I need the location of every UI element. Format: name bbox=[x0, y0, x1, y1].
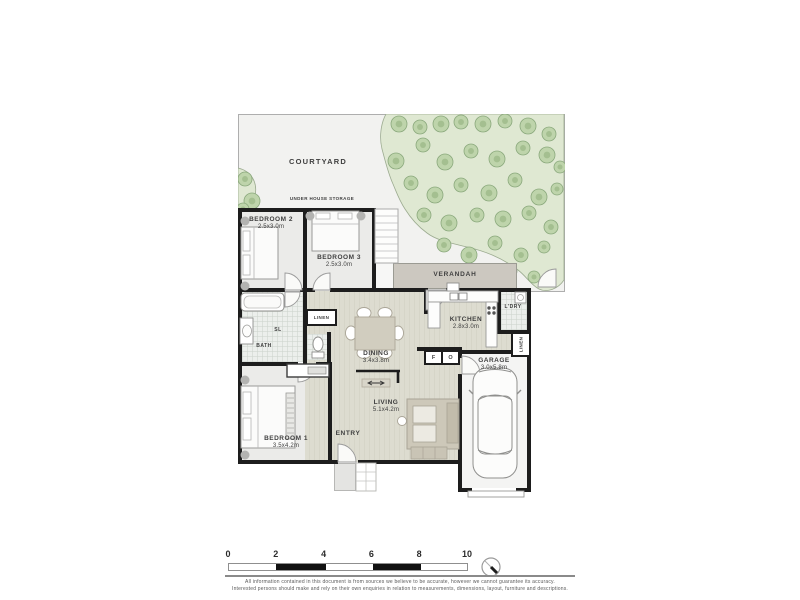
laundry-floor bbox=[501, 292, 527, 330]
kitchen-label: KITCHEN2.8x3.0m bbox=[450, 316, 482, 332]
wall bbox=[358, 460, 462, 464]
tree-inner bbox=[420, 142, 426, 148]
footer-divider bbox=[225, 575, 575, 577]
tree-inner bbox=[502, 118, 508, 124]
tree-inner bbox=[536, 194, 543, 201]
wall bbox=[497, 288, 501, 332]
wall bbox=[238, 362, 298, 366]
wall bbox=[328, 362, 332, 462]
dining-label: DINING3.4x3.8m bbox=[363, 350, 389, 366]
tree-inner bbox=[458, 182, 464, 188]
tree-inner bbox=[486, 190, 493, 197]
tree-inner bbox=[438, 121, 445, 128]
verandah-label: VERANDAH bbox=[433, 271, 476, 279]
tree-inner bbox=[494, 156, 501, 163]
floorplan-page: LINEN LINEN F O bbox=[0, 0, 800, 600]
linen-hall-box: LINEN bbox=[306, 309, 337, 326]
linen-hall-label: LINEN bbox=[314, 315, 330, 320]
wall bbox=[446, 288, 531, 292]
oven-box: O bbox=[441, 350, 460, 365]
tree-inner bbox=[526, 210, 532, 216]
wc-floor bbox=[307, 334, 327, 360]
bedroom3-label: BEDROOM 32.5x3.0m bbox=[317, 254, 361, 270]
skylight-label: SL bbox=[274, 327, 281, 334]
tree-inner bbox=[531, 274, 536, 279]
scale-tick-label: 2 bbox=[273, 549, 278, 559]
wall bbox=[327, 332, 331, 362]
tree-inner bbox=[408, 180, 414, 186]
tree-inner bbox=[557, 164, 562, 169]
garage-floor bbox=[462, 354, 527, 488]
tree-inner bbox=[446, 220, 453, 227]
scale-tick-label: 8 bbox=[417, 549, 422, 559]
tree-inner bbox=[541, 244, 546, 249]
tree-inner bbox=[474, 212, 480, 218]
scale-tick-label: 0 bbox=[225, 549, 230, 559]
tree-inner bbox=[417, 124, 423, 130]
tree-inner bbox=[442, 159, 449, 166]
scale-bar-ticks: 0246810 bbox=[0, 549, 800, 561]
bath-floor bbox=[242, 292, 303, 362]
bedroom2-label: BEDROOM 22.5x3.0m bbox=[249, 216, 293, 232]
wall bbox=[372, 208, 376, 292]
oven-label: O bbox=[448, 355, 452, 361]
tree-inner bbox=[518, 252, 524, 258]
scale-tick-label: 10 bbox=[462, 549, 472, 559]
tree-inner bbox=[432, 192, 439, 199]
tree-inner bbox=[512, 177, 518, 183]
wall bbox=[238, 208, 376, 212]
tree-inner bbox=[393, 158, 400, 165]
tree-inner bbox=[242, 176, 248, 182]
linen-garage-label: LINEN bbox=[519, 337, 524, 353]
wall bbox=[458, 488, 472, 492]
wall bbox=[376, 288, 426, 292]
scale-bar-segment bbox=[373, 564, 421, 570]
wall bbox=[424, 288, 428, 314]
living-label: LIVING5.1x4.2m bbox=[373, 399, 399, 415]
wall bbox=[303, 208, 307, 292]
wall bbox=[238, 460, 338, 464]
tree-inner bbox=[546, 131, 552, 137]
tree-inner bbox=[466, 252, 473, 259]
courtyard-label: COURTYARD bbox=[289, 157, 347, 167]
entry-porch-left bbox=[334, 463, 356, 491]
tree-inner bbox=[249, 198, 256, 205]
wall bbox=[458, 374, 462, 492]
tree-inner bbox=[548, 224, 554, 230]
scale-tick-label: 4 bbox=[321, 549, 326, 559]
disclaimer-line2: Interested persons should make and rely … bbox=[0, 586, 800, 592]
bedroom3-floor bbox=[307, 211, 372, 289]
fridge-label: F bbox=[432, 355, 435, 361]
bedroom1-label: BEDROOM 13.5x4.2m bbox=[264, 435, 308, 451]
wall bbox=[516, 488, 531, 492]
scale-bar-segment bbox=[276, 564, 326, 570]
garage-label: GARAGE3.0x5.8m bbox=[478, 357, 510, 373]
tree-inner bbox=[480, 121, 487, 128]
tree-inner bbox=[458, 119, 464, 125]
laundry-label: L'DRY bbox=[504, 304, 521, 311]
disclaimer-line1: All information contained in this docume… bbox=[0, 579, 800, 585]
tree-inner bbox=[525, 123, 532, 130]
tree-inner bbox=[468, 148, 474, 154]
wall bbox=[238, 208, 242, 464]
scale-bar bbox=[228, 563, 468, 571]
stair-landing bbox=[376, 261, 393, 289]
storage-label: UNDER HOUSE STORAGE bbox=[290, 196, 354, 202]
tree-inner bbox=[421, 212, 427, 218]
wall bbox=[527, 288, 531, 492]
entry-label: ENTRY bbox=[336, 430, 361, 438]
wall bbox=[330, 288, 376, 292]
wall bbox=[238, 288, 285, 292]
tree-inner bbox=[520, 145, 526, 151]
tree-inner bbox=[500, 216, 507, 223]
linen-garage-box: LINEN bbox=[511, 332, 531, 357]
tree-inner bbox=[396, 121, 403, 128]
scale-tick-label: 6 bbox=[369, 549, 374, 559]
tree-inner bbox=[554, 186, 559, 191]
wall bbox=[303, 292, 307, 366]
tree-inner bbox=[492, 240, 498, 246]
tree-inner bbox=[544, 152, 551, 159]
tree-inner bbox=[441, 242, 447, 248]
entry-steps bbox=[356, 463, 376, 491]
bath-label: BATH bbox=[256, 343, 272, 350]
